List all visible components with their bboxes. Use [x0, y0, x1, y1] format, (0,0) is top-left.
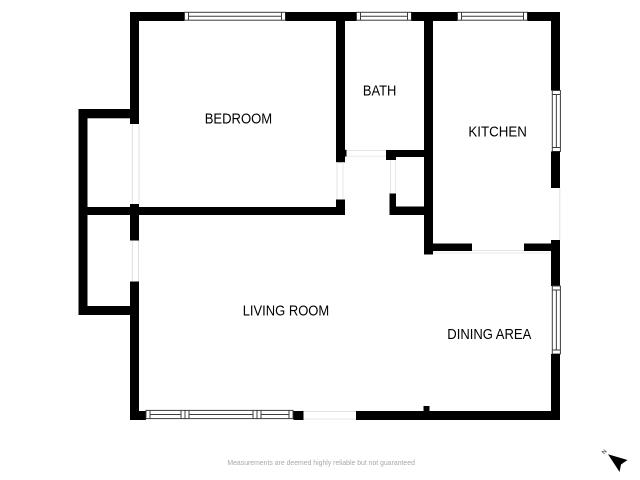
svg-text:BEDROOM: BEDROOM: [205, 110, 273, 127]
svg-text:KITCHEN: KITCHEN: [468, 124, 527, 141]
svg-text:LIVING ROOM: LIVING ROOM: [243, 303, 330, 320]
svg-text:BATH: BATH: [363, 83, 397, 100]
svg-text:DINING AREA: DINING AREA: [447, 326, 531, 343]
svg-text:Measurements are deemed highly: Measurements are deemed highly reliable …: [227, 458, 415, 467]
